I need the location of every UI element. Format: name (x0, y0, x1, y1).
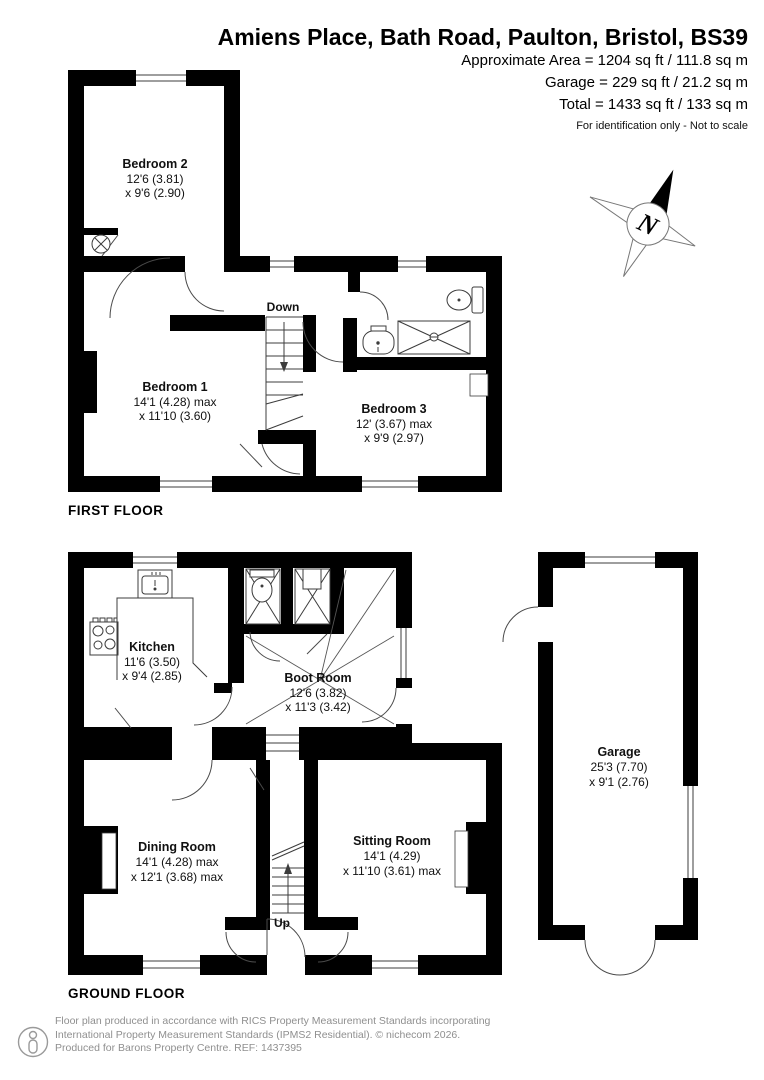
svg-text:12' (3.67) max: 12' (3.67) max (356, 417, 432, 431)
door-swing (620, 940, 655, 975)
fireplace-recess (102, 833, 116, 889)
stairs-up-label: Up (274, 916, 290, 930)
svg-text:11'6 (3.50): 11'6 (3.50) (124, 655, 180, 669)
stairs-down-label: Down (267, 300, 300, 314)
wall-recess (470, 374, 488, 396)
svg-text:x 9'4 (2.85): x 9'4 (2.85) (122, 669, 182, 683)
svg-text:14'1 (4.28) max: 14'1 (4.28) max (136, 855, 219, 869)
svg-text:x 11'3 (3.42): x 11'3 (3.42) (285, 700, 350, 714)
wall (258, 430, 316, 444)
garage-area: Garage = 229 sq ft / 21.2 sq m (218, 72, 748, 94)
svg-text:x 9'9 (2.97): x 9'9 (2.97) (364, 431, 424, 445)
room-label-bedroom2: Bedroom 2 (122, 157, 187, 171)
footer-disclaimer: Floor plan produced in accordance with R… (55, 1015, 615, 1056)
wall (343, 357, 486, 370)
footer-line-3: Produced for Barons Property Centre. REF… (55, 1042, 615, 1056)
chimney-breast (466, 822, 502, 894)
room-label-boot-room: Boot Room (284, 671, 351, 685)
fireplace-recess (455, 831, 468, 887)
room-label-dining-room: Dining Room (138, 840, 216, 854)
front-door-opening (267, 955, 305, 975)
page-title: Amiens Place, Bath Road, Paulton, Bristo… (218, 24, 748, 50)
svg-text:14'1 (4.28) max: 14'1 (4.28) max (134, 395, 217, 409)
door-opening (256, 930, 270, 955)
garage-plan: Garage 25'3 (7.70) x 9'1 (2.76) (503, 552, 698, 975)
wall (214, 683, 232, 693)
approximate-area: Approximate Area = 1204 sq ft / 111.8 sq… (218, 50, 748, 72)
door-swing (503, 607, 538, 642)
wall (303, 444, 316, 476)
footer-line-2: International Property Measurement Stand… (55, 1029, 615, 1043)
ground-floor-plan: Kitchen 11'6 (3.50) x 9'4 (2.85) Boot Ro… (68, 552, 502, 975)
svg-text:x 11'10 (3.61) max: x 11'10 (3.61) max (343, 864, 441, 878)
svg-text:12'6 (3.81): 12'6 (3.81) (127, 172, 184, 186)
wall (170, 315, 265, 331)
first-floor-caption: FIRST FLOOR (68, 503, 164, 518)
door-opening (538, 607, 553, 642)
first-floor-plan: Bedroom 2 12'6 (3.81) x 9'6 (2.90) Bedro… (68, 70, 502, 492)
wall (348, 272, 360, 292)
svg-text:x 9'1 (2.76): x 9'1 (2.76) (589, 775, 649, 789)
door-opening (185, 256, 224, 272)
door-swing (585, 940, 620, 975)
header: Amiens Place, Bath Road, Paulton, Bristo… (218, 24, 748, 132)
svg-text:12'6 (3.82): 12'6 (3.82) (290, 686, 347, 700)
room-label-bedroom3: Bedroom 3 (361, 402, 426, 416)
door-opening (304, 930, 318, 955)
room-label-bedroom1: Bedroom 1 (142, 380, 207, 394)
shower-tray-icon (398, 321, 470, 354)
svg-text:x 9'6 (2.90): x 9'6 (2.90) (125, 186, 185, 200)
door-opening (172, 727, 212, 760)
floor-plan-canvas: Bedroom 2 12'6 (3.81) x 9'6 (2.90) Bedro… (0, 0, 764, 1080)
compass-icon: N (565, 143, 720, 299)
person-icon (19, 1028, 48, 1057)
light-symbol-icon (92, 235, 110, 253)
garage-door-opening (585, 925, 655, 940)
room-label-kitchen: Kitchen (129, 640, 175, 654)
room-label-sitting-room: Sitting Room (353, 834, 431, 848)
floorplan-page: Bedroom 2 12'6 (3.81) x 9'6 (2.90) Bedro… (0, 0, 764, 1080)
svg-text:14'1 (4.29): 14'1 (4.29) (364, 849, 421, 863)
room-label-garage: Garage (597, 745, 640, 759)
door-opening (396, 688, 412, 724)
wall (84, 228, 118, 235)
chimney-breast (84, 351, 97, 413)
disclaimer: For identification only - Not to scale (218, 120, 748, 132)
wall (318, 917, 358, 930)
wall (225, 917, 270, 930)
svg-text:25'3 (7.70): 25'3 (7.70) (591, 760, 648, 774)
ground-floor-caption: GROUND FLOOR (68, 986, 185, 1001)
total-area: Total = 1433 sq ft / 133 sq m (218, 94, 748, 116)
svg-text:x 12'1 (3.68) max: x 12'1 (3.68) max (131, 870, 223, 884)
svg-text:x 11'10 (3.60): x 11'10 (3.60) (139, 409, 211, 423)
footer-line-1: Floor plan produced in accordance with R… (55, 1015, 615, 1029)
